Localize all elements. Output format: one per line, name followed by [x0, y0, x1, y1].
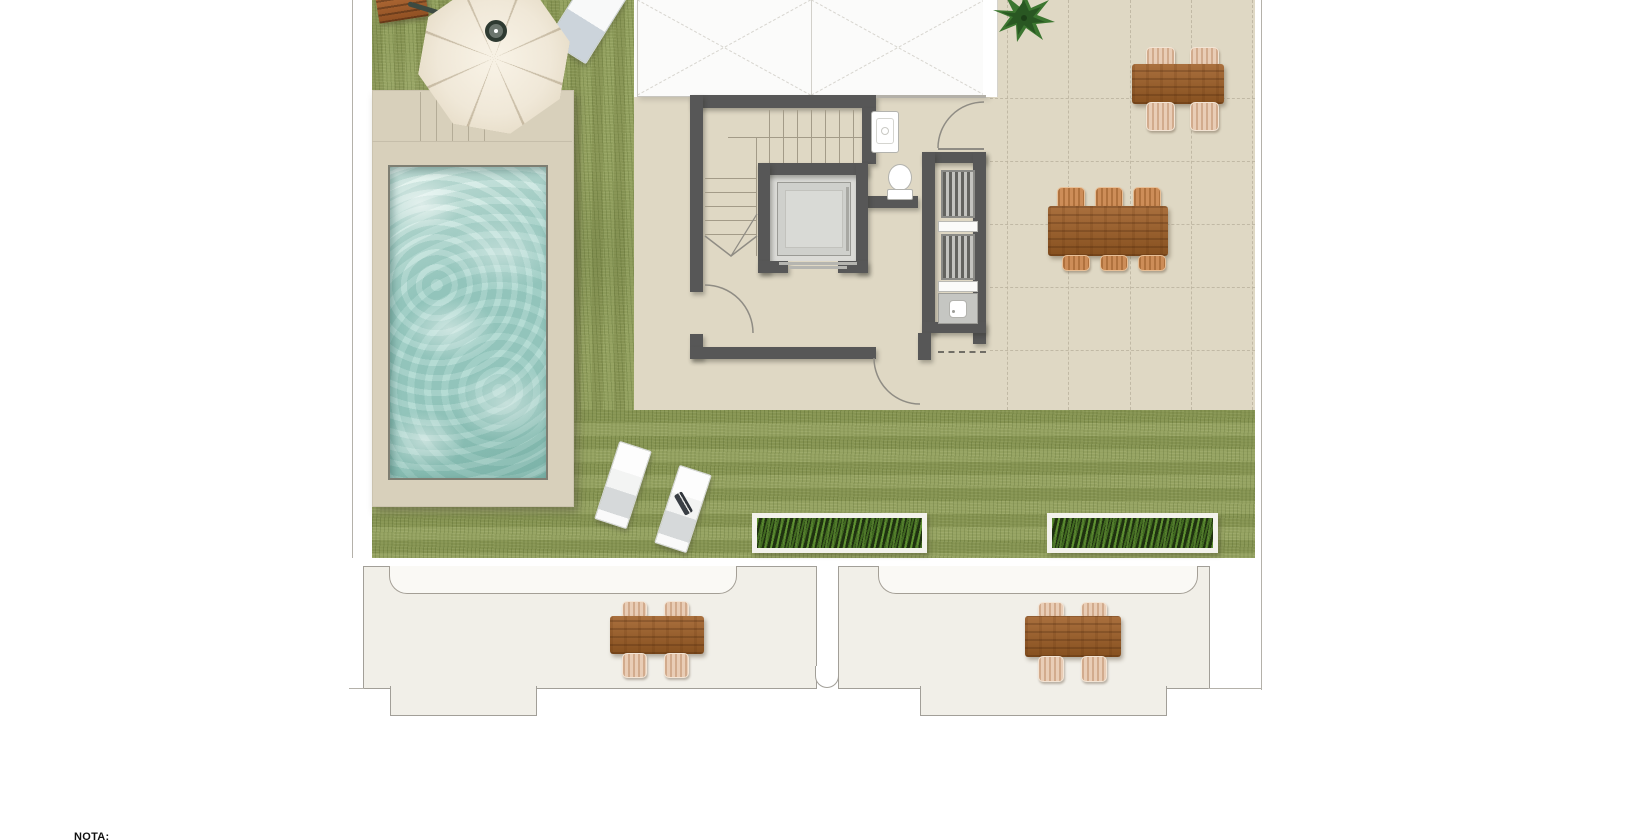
dining-chair: [1062, 255, 1090, 271]
balcony-notch: [920, 686, 1167, 716]
plan-boundary-line: [1208, 688, 1262, 689]
dining-table: [1025, 616, 1121, 657]
dining-table: [1048, 206, 1168, 256]
dining-chair: [1100, 255, 1128, 271]
awning-outline: [878, 566, 1198, 594]
door-swing-arc: [938, 102, 984, 148]
balcony-notch: [390, 686, 537, 716]
dining-chair: [622, 653, 647, 678]
door-swing-arc: [874, 358, 920, 404]
dining-chair: [1081, 656, 1107, 682]
dining-chair: [1190, 102, 1219, 131]
stair-cut-line: [731, 214, 757, 256]
floor-plan-page: NOTA:: [0, 0, 1638, 840]
plan-boundary-line: [1261, 0, 1262, 690]
plan-boundary-line: [349, 688, 364, 689]
dining-chair: [664, 653, 689, 678]
door-swing-arc: [705, 285, 753, 333]
dining-chair: [1138, 255, 1166, 271]
dining-chair: [1146, 102, 1175, 131]
plan-boundary-line: [352, 0, 353, 558]
dining-table: [610, 616, 704, 654]
note-label: NOTA:: [74, 831, 110, 840]
awning-outline: [389, 566, 737, 594]
stair-direction-arrow: [705, 236, 757, 256]
dining-table: [1132, 64, 1224, 104]
dining-chair: [1038, 656, 1064, 682]
door-swing-overlay: [0, 0, 1638, 840]
